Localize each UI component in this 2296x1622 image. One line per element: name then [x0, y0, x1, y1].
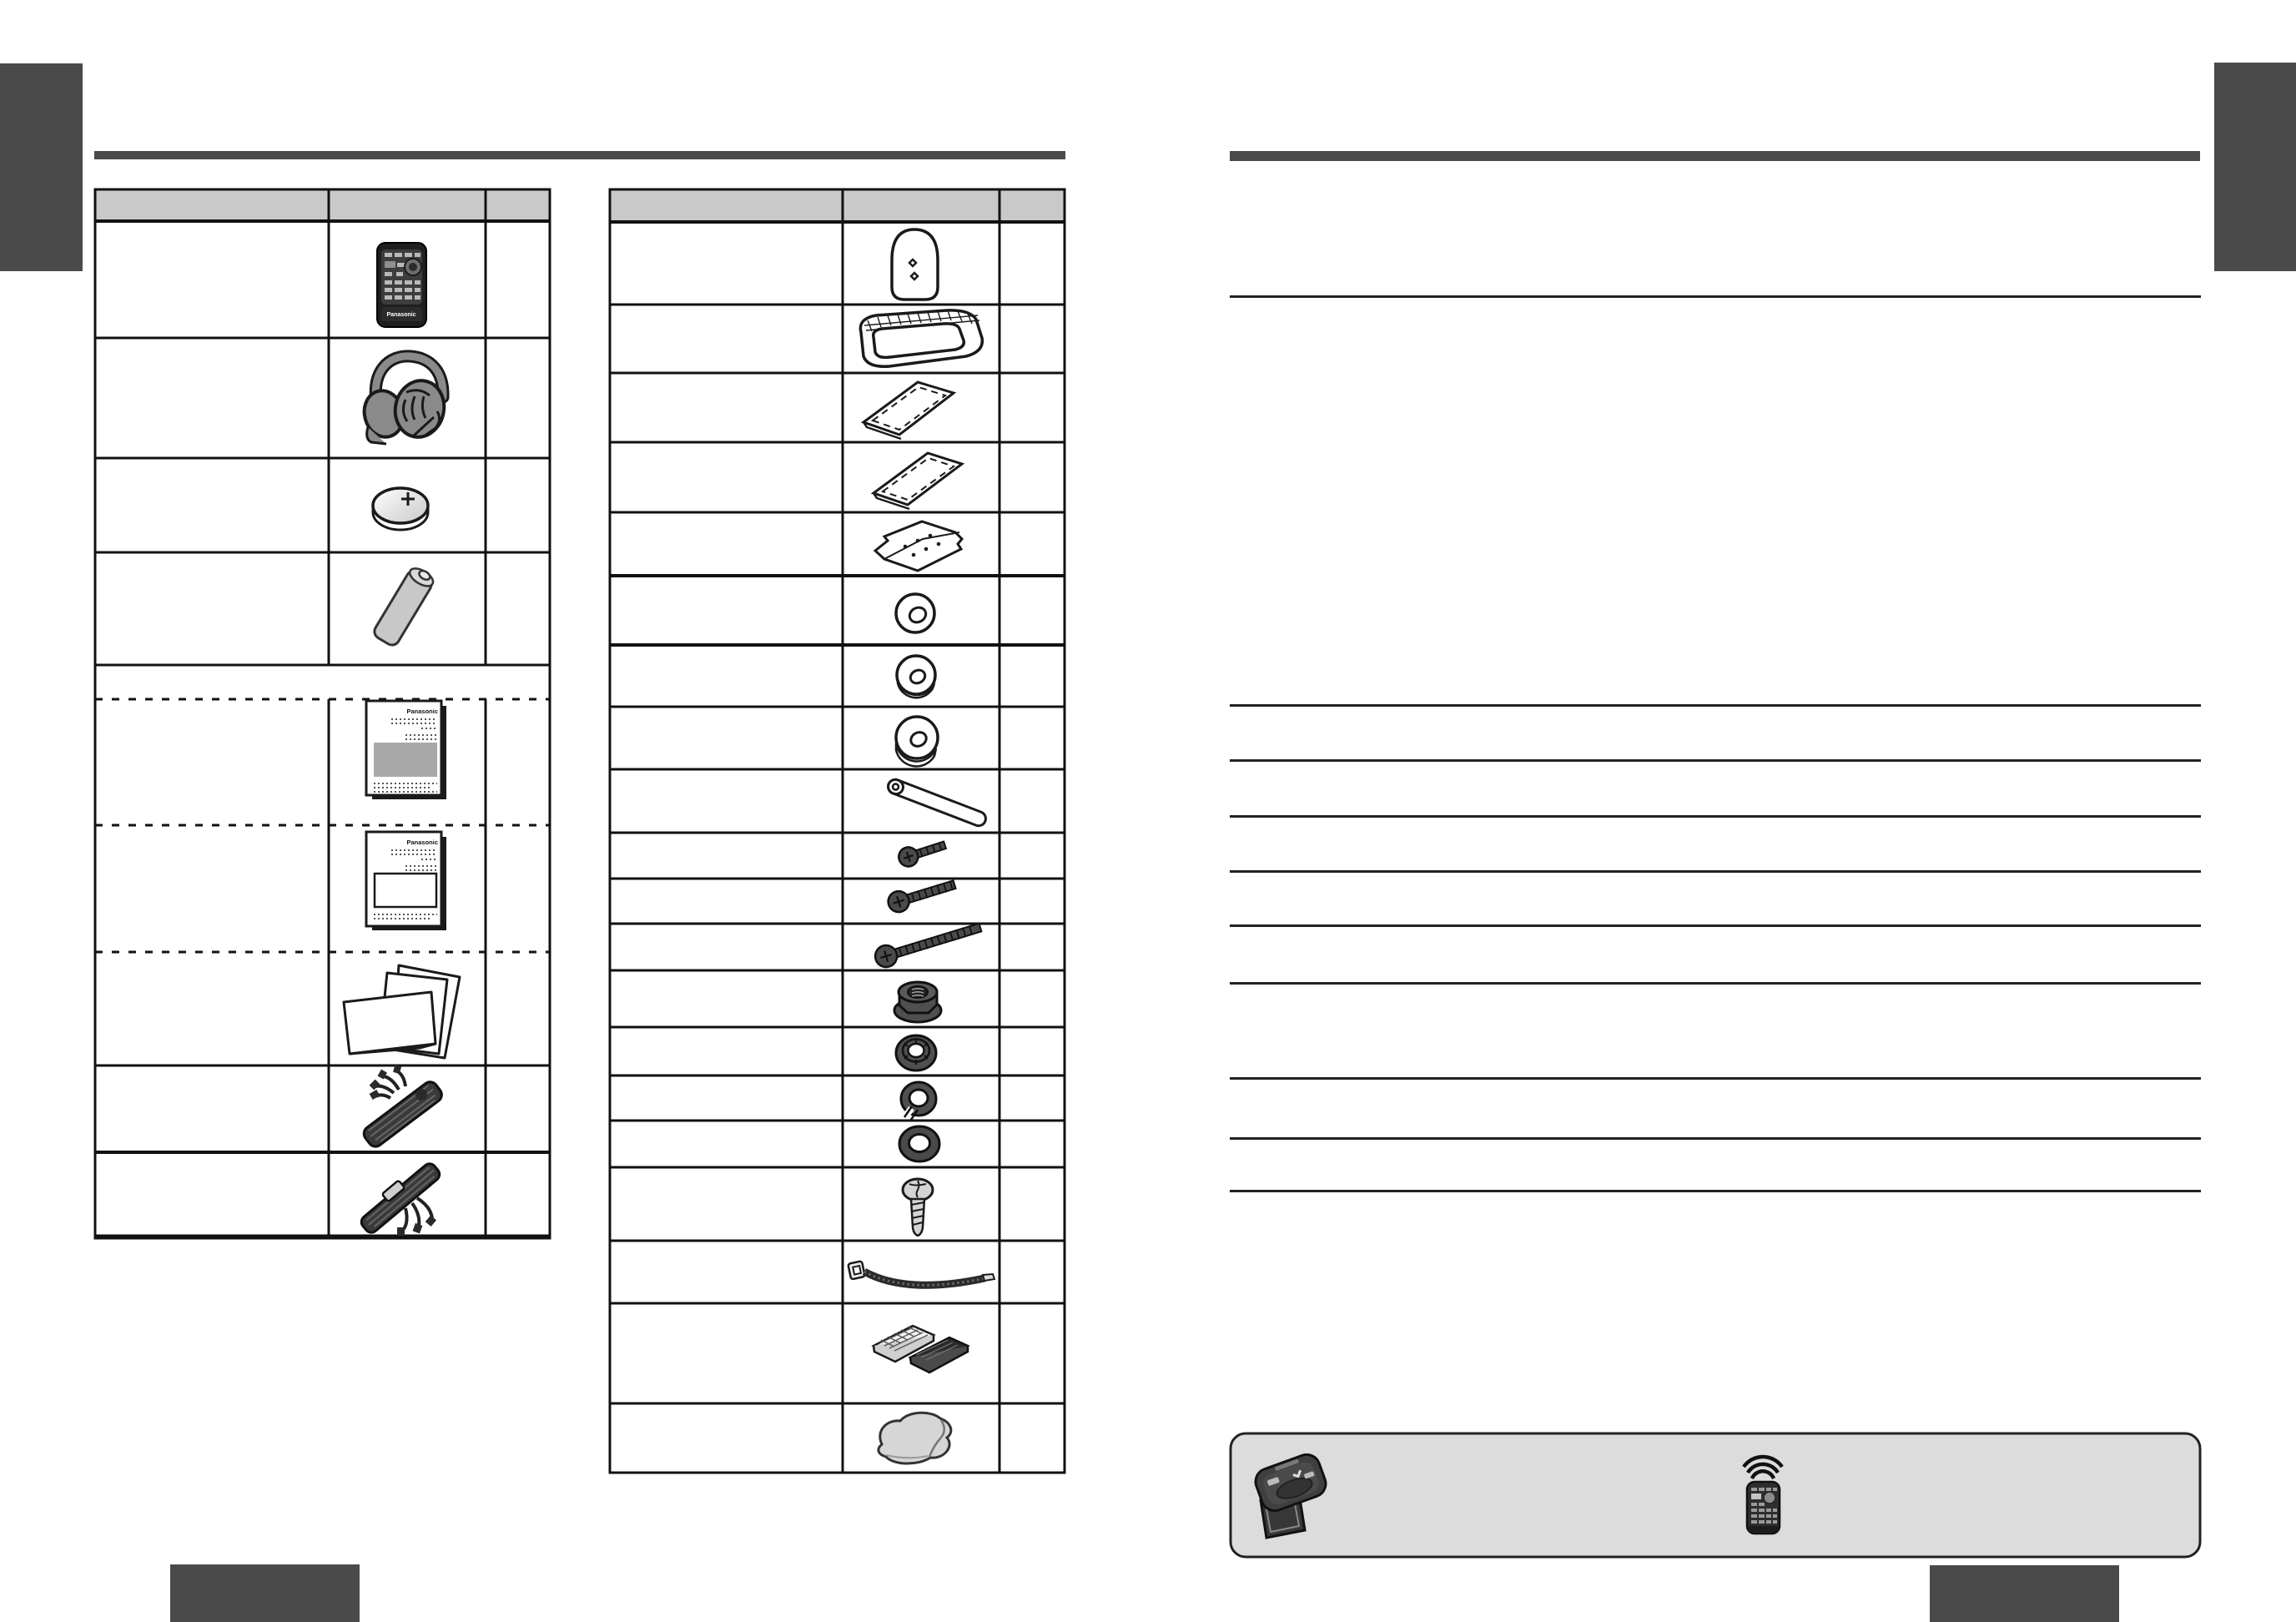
svg-text:Panasonic: Panasonic [406, 839, 438, 846]
svg-text:Panasonic: Panasonic [406, 708, 438, 715]
svg-text:Panasonic: Panasonic [386, 312, 415, 318]
